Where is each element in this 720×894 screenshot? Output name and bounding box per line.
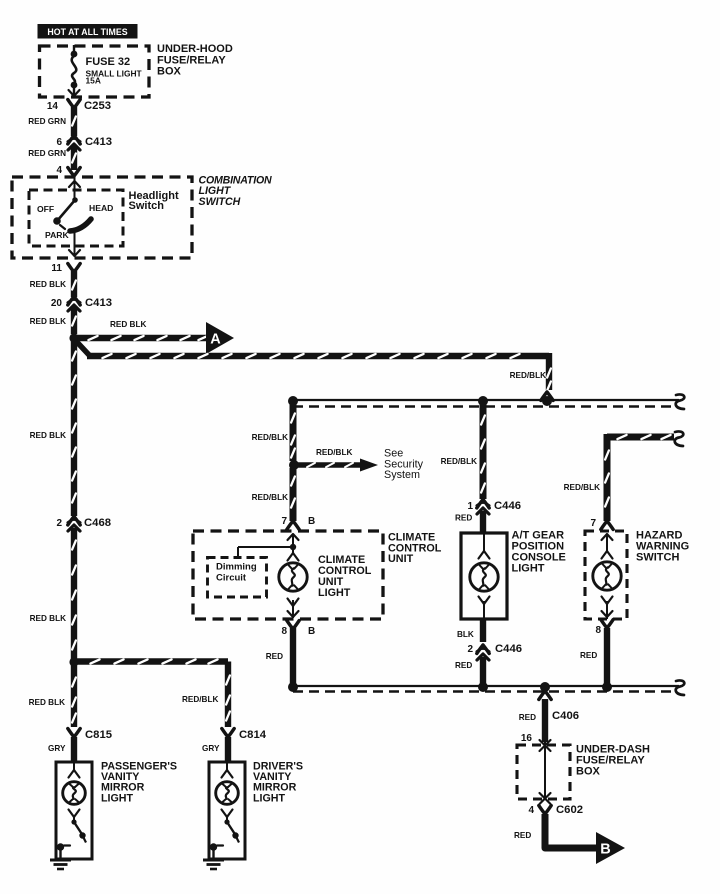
svg-text:RED/BLK: RED/BLK — [564, 483, 600, 492]
svg-text:7: 7 — [590, 518, 596, 529]
svg-text:Switch: Switch — [129, 200, 165, 212]
svg-text:RED: RED — [455, 661, 472, 670]
svg-text:OFF: OFF — [37, 204, 54, 214]
svg-text:16: 16 — [521, 733, 533, 744]
svg-text:LIGHT: LIGHT — [318, 587, 351, 599]
svg-text:C814: C814 — [239, 729, 267, 741]
svg-text:4: 4 — [528, 805, 534, 816]
svg-text:RED/BLK: RED/BLK — [510, 371, 546, 380]
svg-text:C253: C253 — [84, 100, 111, 112]
svg-text:RED/BLK: RED/BLK — [252, 433, 288, 442]
svg-text:C406: C406 — [552, 710, 579, 722]
svg-text:C815: C815 — [85, 729, 112, 741]
svg-text:UNDER-HOOD: UNDER-HOOD — [157, 43, 233, 55]
svg-text:RED: RED — [514, 831, 531, 840]
svg-text:BOX: BOX — [576, 765, 601, 777]
svg-text:C413: C413 — [85, 136, 112, 148]
svg-text:8: 8 — [281, 626, 287, 637]
svg-text:C446: C446 — [495, 643, 522, 655]
svg-text:A: A — [210, 332, 221, 348]
svg-text:RED GRN: RED GRN — [28, 149, 66, 158]
svg-text:SWITCH: SWITCH — [199, 196, 241, 208]
svg-text:RED: RED — [580, 651, 597, 660]
svg-text:8: 8 — [595, 625, 601, 636]
svg-text:20: 20 — [51, 298, 63, 309]
svg-text:LIGHT: LIGHT — [512, 562, 545, 574]
svg-text:RED/BLK: RED/BLK — [441, 457, 477, 466]
svg-text:RED: RED — [455, 514, 472, 523]
svg-text:RED BLK: RED BLK — [29, 698, 65, 707]
svg-text:GRY: GRY — [202, 744, 220, 753]
svg-text:RED BLK: RED BLK — [30, 614, 66, 623]
svg-text:C468: C468 — [84, 517, 111, 529]
svg-text:RED BLK: RED BLK — [110, 320, 146, 329]
svg-text:6: 6 — [56, 137, 62, 148]
svg-text:FUSE 32: FUSE 32 — [86, 56, 131, 68]
svg-text:RED BLK: RED BLK — [30, 431, 66, 440]
svg-text:HOT AT ALL TIMES: HOT AT ALL TIMES — [47, 27, 127, 37]
svg-text:2: 2 — [56, 518, 62, 529]
svg-text:B: B — [308, 626, 315, 637]
svg-text:4: 4 — [56, 165, 62, 176]
svg-text:RED/BLK: RED/BLK — [252, 493, 288, 502]
svg-text:C413: C413 — [85, 297, 112, 309]
svg-text:RED BLK: RED BLK — [30, 317, 66, 326]
svg-text:LIGHT: LIGHT — [101, 792, 134, 804]
svg-text:BOX: BOX — [157, 65, 182, 77]
svg-text:RED/BLK: RED/BLK — [182, 695, 218, 704]
svg-text:B: B — [600, 842, 610, 858]
svg-text:15A: 15A — [86, 76, 101, 86]
svg-text:RED: RED — [266, 652, 283, 661]
svg-text:UNIT: UNIT — [388, 553, 414, 565]
svg-text:1: 1 — [467, 501, 473, 512]
svg-text:System: System — [384, 469, 420, 481]
svg-text:Dimming: Dimming — [216, 561, 257, 572]
svg-text:RED: RED — [519, 713, 536, 722]
svg-text:RED/BLK: RED/BLK — [316, 448, 352, 457]
svg-text:C446: C446 — [494, 500, 521, 512]
svg-text:RED BLK: RED BLK — [30, 280, 66, 289]
svg-text:HEAD: HEAD — [89, 203, 113, 213]
svg-text:GRY: GRY — [48, 744, 66, 753]
svg-text:SWITCH: SWITCH — [636, 551, 679, 563]
svg-text:B: B — [308, 516, 315, 527]
svg-text:LIGHT: LIGHT — [253, 792, 286, 804]
svg-text:Circuit: Circuit — [216, 572, 247, 583]
svg-text:14: 14 — [47, 101, 59, 112]
svg-text:BLK: BLK — [457, 630, 474, 639]
svg-text:RED GRN: RED GRN — [28, 117, 66, 126]
svg-text:C602: C602 — [556, 804, 583, 816]
svg-text:PARK: PARK — [45, 230, 70, 240]
svg-text:7: 7 — [281, 516, 287, 527]
svg-text:11: 11 — [51, 263, 62, 274]
svg-text:2: 2 — [467, 644, 473, 655]
